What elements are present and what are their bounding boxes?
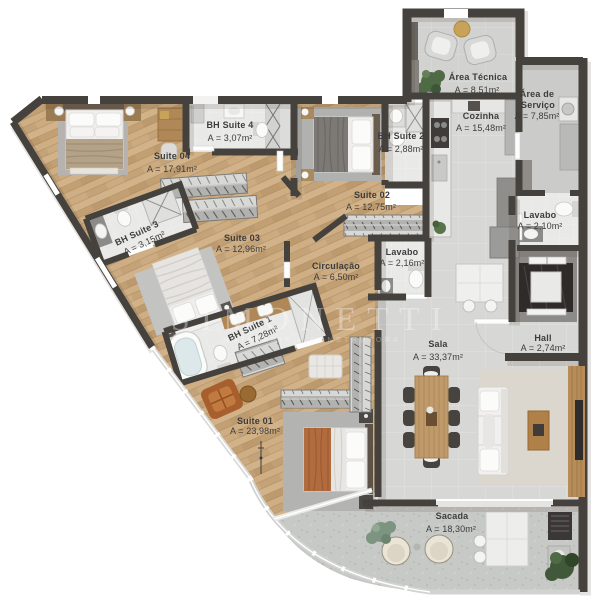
svg-text:A = 12,75m²: A = 12,75m²	[346, 202, 396, 212]
svg-text:A = 15,48m²: A = 15,48m²	[456, 123, 506, 133]
svg-text:Sala: Sala	[428, 339, 448, 349]
svg-text:Hall: Hall	[534, 333, 551, 343]
svg-text:A = 7,85m²: A = 7,85m²	[515, 111, 560, 121]
svg-text:Área Técnica: Área Técnica	[449, 72, 508, 82]
svg-text:BH Suite 2: BH Suite 2	[377, 131, 424, 141]
svg-text:A = 2,88m²: A = 2,88m²	[379, 144, 424, 154]
svg-text:A = 33,37m²: A = 33,37m²	[413, 352, 463, 362]
svg-text:A = 2,10m²: A = 2,10m²	[518, 221, 563, 231]
svg-text:A = 2,74m²: A = 2,74m²	[521, 343, 566, 353]
svg-text:A = 18,30m²: A = 18,30m²	[426, 524, 476, 534]
svg-text:A = 6,50m²: A = 6,50m²	[314, 272, 359, 282]
svg-text:Suite 04: Suite 04	[154, 151, 190, 161]
svg-text:A = 12,96m²: A = 12,96m²	[216, 244, 266, 254]
svg-text:Circulação: Circulação	[312, 261, 360, 271]
svg-text:Serviço: Serviço	[521, 100, 555, 110]
svg-text:Suite 02: Suite 02	[354, 190, 390, 200]
svg-text:HOTELARIA E CONSTRUTORA: HOTELARIA E CONSTRUTORA	[223, 335, 401, 344]
svg-text:Suite 03: Suite 03	[224, 233, 260, 243]
svg-text:Suite 01: Suite 01	[237, 416, 273, 426]
svg-text:A = 2,16m²: A = 2,16m²	[380, 258, 425, 268]
svg-text:Sacada: Sacada	[436, 511, 470, 521]
svg-text:Cozinha: Cozinha	[463, 111, 500, 121]
svg-text:Área de: Área de	[520, 89, 554, 99]
svg-text:A = 3,07m²: A = 3,07m²	[208, 133, 253, 143]
svg-text:A = 23,98m²: A = 23,98m²	[230, 426, 280, 436]
svg-text:SIMONETTI: SIMONETTI	[171, 301, 453, 338]
svg-text:BH Suite 4: BH Suite 4	[206, 120, 253, 130]
svg-text:Lavabo: Lavabo	[386, 247, 419, 257]
svg-text:A = 17,91m²: A = 17,91m²	[147, 164, 197, 174]
svg-text:A = 8,51m²: A = 8,51m²	[455, 85, 500, 95]
svg-text:Lavabo: Lavabo	[524, 210, 557, 220]
